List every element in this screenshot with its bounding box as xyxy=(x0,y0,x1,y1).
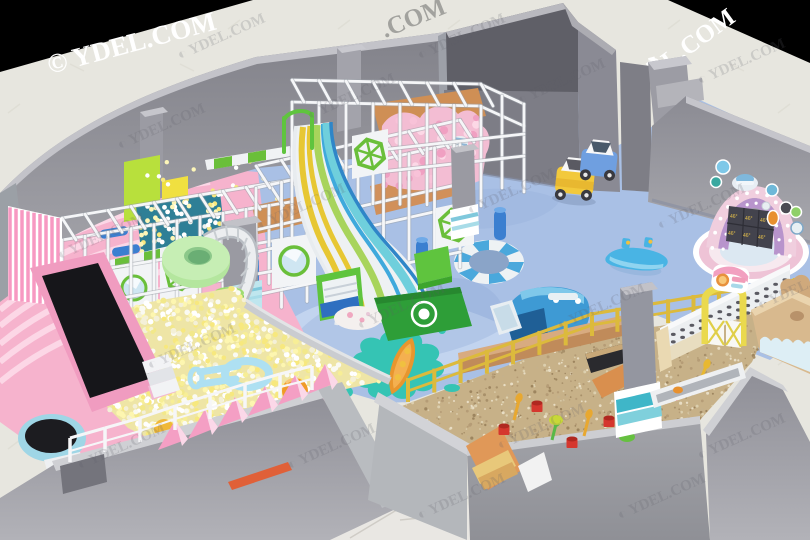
svg-text:46°: 46° xyxy=(728,231,736,237)
svg-text:46°: 46° xyxy=(758,235,766,241)
svg-text:46°: 46° xyxy=(743,233,751,239)
svg-text:46°: 46° xyxy=(745,216,753,222)
svg-text:46°: 46° xyxy=(730,214,738,220)
svg-text:46°: 46° xyxy=(760,218,768,224)
